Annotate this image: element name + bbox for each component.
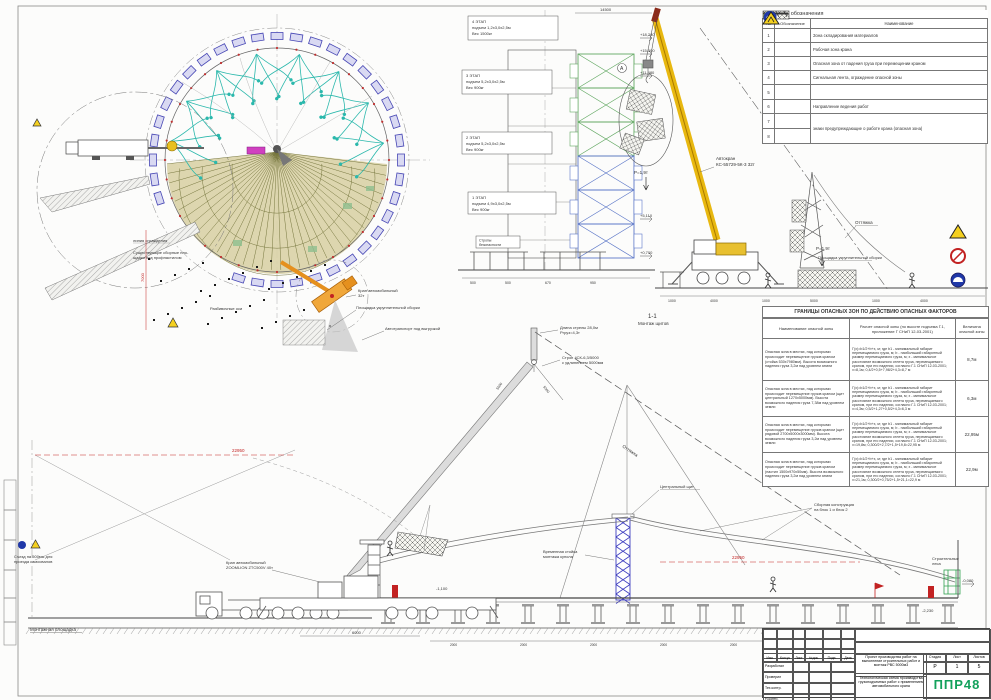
svg-text:Оттяжка: Оттяжка: [855, 220, 873, 225]
support-base: [941, 622, 955, 624]
hatch-tick: [222, 628, 226, 634]
hatch-tick: [593, 628, 597, 634]
svg-text:5000: 5000: [496, 382, 504, 391]
crane-warning-sign-icon: [762, 10, 780, 26]
rim-dot: [171, 197, 173, 199]
hatch-tick: [418, 628, 422, 634]
hatch-tick: [362, 628, 366, 634]
svg-text:+0,700: +0,700: [640, 250, 653, 255]
hatch-tick: [712, 628, 716, 634]
hatch-tick: [110, 628, 114, 634]
scaffold-block: [382, 209, 394, 223]
rim-dot: [295, 49, 297, 51]
stockpile-dot: [303, 309, 305, 311]
hatch-tick: [432, 628, 436, 634]
hatch-tick: [621, 628, 625, 634]
support-cap: [697, 604, 709, 607]
svg-text:-2,230: -2,230: [922, 608, 934, 613]
rim-dot: [381, 121, 383, 123]
svg-text:Вес 900кг: Вес 900кг: [466, 147, 484, 152]
scaffold-block: [290, 278, 303, 287]
danger-row: Опасная зона в местах, над которыми прои…: [763, 417, 989, 453]
stockpile-dot: [207, 323, 209, 325]
hatch-tick: [201, 628, 205, 634]
rim-dot: [238, 54, 240, 56]
stockpile-dot: [249, 305, 251, 307]
stockpile-dot: [221, 317, 223, 319]
scaffold-block: [290, 33, 303, 42]
svg-text:Монтаж щитов: Монтаж щитов: [638, 321, 669, 326]
rim-dot: [166, 139, 168, 141]
support-legs: [595, 606, 601, 622]
svg-text:7000: 7000: [140, 272, 145, 282]
hatch-tick: [425, 628, 429, 634]
svg-text:1000: 1000: [762, 299, 770, 303]
scaffold-block: [161, 97, 173, 111]
hatch-tick: [460, 628, 464, 634]
rim-dot: [220, 62, 222, 64]
stockpile-dot: [324, 264, 326, 266]
scaffold-block: [382, 97, 394, 111]
hatch-tick: [187, 628, 191, 634]
hatch-tick: [502, 628, 506, 634]
scaffold-block: [358, 241, 371, 254]
hatch-tick: [558, 628, 562, 634]
hatch-tick: [516, 628, 520, 634]
svg-text:670: 670: [545, 281, 551, 285]
legend-title: Условные обозначения: [762, 10, 988, 18]
hatch-tick: [530, 628, 534, 634]
legend-row-name: Направление ведения работ: [811, 100, 988, 114]
stockpile-dot: [174, 274, 176, 276]
svg-text:6000: 6000: [352, 630, 362, 635]
scaffold-platform: [570, 166, 578, 180]
rim-dot: [276, 271, 278, 273]
scaffold-block: [271, 33, 283, 40]
legend-row-name: Зона складирования материалов: [811, 29, 988, 43]
hatch-tick: [614, 628, 618, 634]
hatch-tick: [327, 628, 331, 634]
support-cap: [907, 604, 919, 607]
support-base: [836, 622, 850, 624]
hatch-tick: [180, 628, 184, 634]
hatch-tick: [635, 628, 639, 634]
scheme-title: Технологическая схема производства грузо…: [855, 673, 927, 700]
rim-dot: [220, 256, 222, 258]
legend-row-name: Опасная зона от падения груза при переме…: [811, 57, 988, 71]
hatch-tick: [299, 628, 303, 634]
svg-text:леса: леса: [932, 561, 942, 566]
stockpile-dot: [235, 311, 237, 313]
svg-text:Оттяжка: Оттяжка: [621, 444, 639, 458]
hatch-tick: [670, 628, 674, 634]
worker-figure: [770, 577, 776, 592]
svg-text:2000: 2000: [730, 643, 737, 647]
support-cap: [662, 604, 674, 607]
legend-table: Условные обозначения № Обозначение Наиме…: [762, 10, 988, 144]
hatch-tick: [334, 628, 338, 634]
road-sign-icon: [18, 541, 26, 549]
rim-dot: [171, 121, 173, 123]
hatch-tick: [278, 628, 282, 634]
stockpile-dot: [310, 270, 312, 272]
svg-text:подъем 5,2х3,0х2,5м: подъем 5,2х3,0х2,5м: [466, 141, 505, 146]
svg-text:ZOOMLION ZTC500V 40т: ZOOMLION ZTC500V 40т: [226, 565, 273, 570]
stockpile-dot: [282, 282, 284, 284]
scaffold-tower: [570, 54, 642, 258]
support-cap: [522, 604, 534, 607]
svg-text:Разбивочные оси: Разбивочные оси: [210, 306, 242, 311]
support-legs: [875, 606, 881, 622]
hatch-tick: [586, 628, 590, 634]
svg-text:Р=1,9т: Р=1,9т: [634, 170, 648, 175]
svg-text:3 ЭТАП: 3 ЭТАП: [466, 73, 480, 78]
scaffold-block: [395, 173, 404, 186]
hatch-tick: [467, 628, 471, 634]
rim-dot: [362, 231, 364, 233]
rim-dot: [373, 215, 375, 217]
svg-text:14500: 14500: [600, 7, 612, 12]
svg-text:Площадка укрупнительной сборки: Площадка укрупнительной сборки: [356, 305, 420, 310]
svg-text:КС-55729-5К-3 32т: КС-55729-5К-3 32т: [716, 162, 755, 167]
stockpile-dot: [242, 272, 244, 274]
rim-dot: [332, 62, 334, 64]
hatch-tick: [495, 628, 499, 634]
svg-text:проезда самосвалов: проезда самосвалов: [14, 559, 52, 564]
hatch-tick: [565, 628, 569, 634]
hatch-tick: [733, 628, 737, 634]
hatch-tick: [509, 628, 513, 634]
rim-dot: [386, 178, 388, 180]
hatch-tick: [285, 628, 289, 634]
scaffold-platform: [570, 98, 578, 112]
rim-dot: [314, 54, 316, 56]
rim-dot: [166, 178, 168, 180]
scaffold-block: [150, 134, 159, 147]
svg-text:монтажа купола: монтажа купола: [543, 554, 574, 559]
legend-row-name: знаки предупреждающие о работе крана (оп…: [811, 114, 988, 144]
scaffold-block: [150, 173, 159, 186]
danger-table-title: ГРАНИЦЫ ОПАСНЫХ ЗОН ПО ДЕЙСТВИЮ ОПАСНЫХ …: [762, 306, 989, 318]
hatch-tick: [131, 628, 135, 634]
support-legs: [945, 606, 951, 622]
support-base: [766, 622, 780, 624]
hatch-tick: [404, 628, 408, 634]
scaffold-block: [170, 80, 183, 94]
legend-col-name: Наименование: [811, 19, 988, 29]
svg-text:-0,080: -0,080: [962, 578, 974, 583]
svg-text:+5,110: +5,110: [640, 213, 653, 218]
central-post: [616, 518, 630, 600]
stockpile-dot: [188, 268, 190, 270]
danger-col-calc: Расчет опасной зоны (по высоте подъема Г…: [850, 319, 955, 339]
scaffold-block: [390, 115, 400, 129]
support-cap: [557, 604, 569, 607]
stockpile-dot: [263, 299, 265, 301]
hatch-tick: [341, 628, 345, 634]
rim-dot: [348, 73, 350, 75]
worker-figure: [387, 541, 393, 556]
scaffold-platform: [570, 200, 578, 214]
rim-dot: [388, 159, 390, 161]
hatch-tick: [537, 628, 541, 634]
support-base: [906, 622, 920, 624]
stockpile-dot: [153, 319, 155, 321]
stockpile-dot: [195, 301, 197, 303]
assembly-pad: [283, 320, 325, 345]
hatch-tick: [642, 628, 646, 634]
hatch-tick: [523, 628, 527, 634]
stockpile-dot: [214, 284, 216, 286]
warning-sign-icon: [33, 119, 41, 126]
hatch-tick: [173, 628, 177, 634]
rim-dot: [238, 264, 240, 266]
rim-dot: [348, 245, 350, 247]
support-legs: [805, 606, 811, 622]
scaffold-platform: [634, 200, 642, 214]
svg-text:500: 500: [505, 281, 511, 285]
support-cap: [767, 604, 779, 607]
hatch-tick: [313, 628, 317, 634]
hatch-tick: [649, 628, 653, 634]
rim-dot: [373, 103, 375, 105]
svg-text:линия ограждения: линия ограждения: [133, 238, 167, 243]
support-base: [801, 622, 815, 624]
warning-sign-icon: [31, 540, 40, 548]
hatch-tick: [292, 628, 296, 634]
scaffold-block: [371, 226, 384, 240]
support-base: [731, 622, 745, 624]
scaffold-brace: [578, 88, 634, 122]
support-base: [416, 622, 430, 624]
rim-dot: [179, 215, 181, 217]
svg-text:подъем 4,9х3,0х2,5м: подъем 4,9х3,0х2,5м: [472, 201, 511, 206]
hatch-tick: [544, 628, 548, 634]
hatch-tick: [145, 628, 149, 634]
scaffold-block: [214, 44, 228, 56]
scaffold-block: [398, 154, 405, 166]
hatch-tick: [383, 628, 387, 634]
legend-row-name: [811, 85, 988, 100]
svg-text:4000: 4000: [920, 299, 928, 303]
danger-row: Опасная зона в местах, над которыми прои…: [763, 339, 989, 381]
scaffold-block: [251, 33, 264, 42]
support-cap: [802, 604, 814, 607]
center-platform: [247, 147, 265, 154]
scaffold-block: [197, 53, 211, 66]
hatch-tick: [138, 628, 142, 634]
svg-text:Вес 900кг: Вес 900кг: [466, 85, 484, 90]
hatch-tick: [705, 628, 709, 634]
scaffold-block: [326, 265, 340, 277]
hatch-tick: [215, 628, 219, 634]
assembly-platform: [798, 270, 856, 288]
support-base: [696, 622, 710, 624]
legend-row-name: Рабочая зона крана: [811, 43, 988, 57]
scaffold-block: [395, 134, 404, 147]
support-legs: [735, 606, 741, 622]
svg-text:-1,100: -1,100: [436, 586, 448, 591]
rim-dot: [362, 87, 364, 89]
building-dim-chain: 500 500 670 950: [462, 278, 650, 285]
svg-text:5000: 5000: [542, 385, 550, 394]
scaffold-brace: [578, 190, 634, 224]
support-base: [521, 622, 535, 624]
support-base: [486, 622, 500, 624]
support-legs: [840, 606, 846, 622]
scaffold-block: [343, 53, 357, 66]
hatch-tick: [117, 628, 121, 634]
support-cap: [592, 604, 604, 607]
worker-figure: [909, 273, 915, 288]
hatch-tick: [656, 628, 660, 634]
hatch-tick: [96, 628, 100, 634]
hatch-tick: [82, 628, 86, 634]
scaffold-block: [326, 44, 340, 56]
hatch-tick: [236, 628, 240, 634]
support-cap: [732, 604, 744, 607]
hatch-tick: [481, 628, 485, 634]
svg-text:Вес 1500кг: Вес 1500кг: [472, 31, 493, 36]
stockpile-dot: [202, 262, 204, 264]
red-marker: [392, 585, 398, 598]
hatch-tick: [229, 628, 233, 634]
rim-dot: [256, 269, 258, 271]
svg-text:с удлинением 5000мм: с удлинением 5000мм: [562, 360, 603, 365]
hatch-tick: [754, 628, 758, 634]
rim-dot: [204, 73, 206, 75]
red-flag: [875, 583, 883, 598]
hatch-tick: [89, 628, 93, 634]
svg-text:4000: 4000: [710, 299, 718, 303]
support-base: [381, 622, 395, 624]
svg-text:5000: 5000: [810, 299, 818, 303]
scaffold-block: [232, 273, 246, 283]
svg-text:4 ЭТАП: 4 ЭТАП: [472, 19, 486, 24]
company-logo: ППР48: [923, 673, 991, 699]
support-legs: [910, 606, 916, 622]
svg-text:2000: 2000: [590, 643, 597, 647]
support-base: [556, 622, 570, 624]
rim-dot: [386, 139, 388, 141]
svg-text:2000: 2000: [520, 643, 527, 647]
hatch-tick: [579, 628, 583, 634]
hatch-tick: [439, 628, 443, 634]
svg-text:на блок 1 и блок 2: на блок 1 и блок 2: [814, 507, 848, 512]
roles-grid: Разработал Проверил Тех.контр. Н.контр.: [763, 661, 855, 700]
scaffold-block: [271, 281, 283, 288]
scaffold-block: [150, 154, 157, 166]
svg-text:Вес 900кг: Вес 900кг: [472, 207, 490, 212]
warning-sign-icon: [168, 318, 178, 327]
svg-text:щадки под профнастилом: щадки под профнастилом: [133, 255, 182, 260]
support-base: [871, 622, 885, 624]
svg-text:500: 500: [470, 281, 476, 285]
rim-dot: [204, 245, 206, 247]
stockpile-dot: [261, 327, 263, 329]
hatch-tick: [719, 628, 723, 634]
hatch-tick: [726, 628, 730, 634]
hatch-tick: [159, 628, 163, 634]
scaffold-platform: [570, 234, 578, 248]
danger-col-zone: Наименование опасной зоны: [763, 319, 850, 339]
hatch-tick: [369, 628, 373, 634]
svg-text:950: 950: [590, 281, 596, 285]
hatch-tick: [677, 628, 681, 634]
rim-dot: [164, 159, 166, 161]
support-cap: [627, 604, 639, 607]
hatch-tick: [166, 628, 170, 634]
stockpile-dot: [228, 278, 230, 280]
danger-row: Опасная зона в местах, над которыми прои…: [763, 453, 989, 487]
hatch-tick: [600, 628, 604, 634]
hatch-tick: [747, 628, 751, 634]
hatch-tick: [264, 628, 268, 634]
title-block: Изм. Кол.уч Лист №док. Подп. Дата Разраб…: [762, 628, 990, 698]
scaffold-block: [309, 37, 323, 47]
rim-dot: [332, 256, 334, 258]
svg-text:2000: 2000: [660, 643, 667, 647]
scaffold-block: [183, 66, 196, 79]
hatch-tick: [607, 628, 611, 634]
stockpile-dot: [167, 313, 169, 315]
hatch-tick: [390, 628, 394, 634]
scaffold-block: [251, 278, 264, 287]
scaffold-block: [358, 66, 371, 79]
hatch-tick: [628, 628, 632, 634]
stockpile-dot: [200, 290, 202, 292]
svg-text:1000: 1000: [668, 299, 676, 303]
svg-text:Стропы: Стропы: [479, 239, 492, 243]
svg-text:+18,280: +18,280: [640, 32, 655, 37]
hatch-tick: [320, 628, 324, 634]
hatch-tick: [103, 628, 107, 634]
support-legs: [700, 606, 706, 622]
worker-figure: [765, 273, 771, 288]
hatch-tick: [551, 628, 555, 634]
svg-text:22950: 22950: [732, 555, 745, 560]
stockpile-dot: [256, 266, 258, 268]
support-base: [661, 622, 675, 624]
hatch-tick: [124, 628, 128, 634]
svg-text:Автотранспорт под выгрузкой: Автотранспорт под выгрузкой: [385, 326, 440, 331]
roof-beams: [372, 516, 955, 582]
stockpile-dot: [209, 295, 211, 297]
hatch-tick: [684, 628, 688, 634]
svg-text:2000: 2000: [450, 643, 457, 647]
scaffold-brace: [578, 156, 634, 190]
hatch-tick: [411, 628, 415, 634]
svg-text:1-1: 1-1: [648, 314, 657, 320]
legend-row-name: Сигнальная лента, ограждение опасной зон…: [811, 71, 988, 85]
crane-dim-chain: 1000 4000 1000 5000 1000 4000: [660, 296, 985, 303]
benches: [470, 252, 606, 270]
svg-text:Центральный щит: Центральный щит: [660, 484, 694, 489]
support-legs: [525, 606, 531, 622]
svg-text:Ргруз=4,3т: Ргруз=4,3т: [560, 330, 580, 335]
scaffold-block: [154, 192, 164, 206]
hatch-tick: [306, 628, 310, 634]
support-base: [451, 622, 465, 624]
safety-signs: [950, 225, 966, 287]
scaffold-block: [232, 37, 246, 47]
stockpile-dot: [275, 321, 277, 323]
hatch-tick: [243, 628, 247, 634]
scaffold-brace: [578, 224, 634, 258]
stockpile-dot: [289, 315, 291, 317]
scaffold-platform: [570, 132, 578, 146]
scaffold-block: [390, 192, 400, 206]
